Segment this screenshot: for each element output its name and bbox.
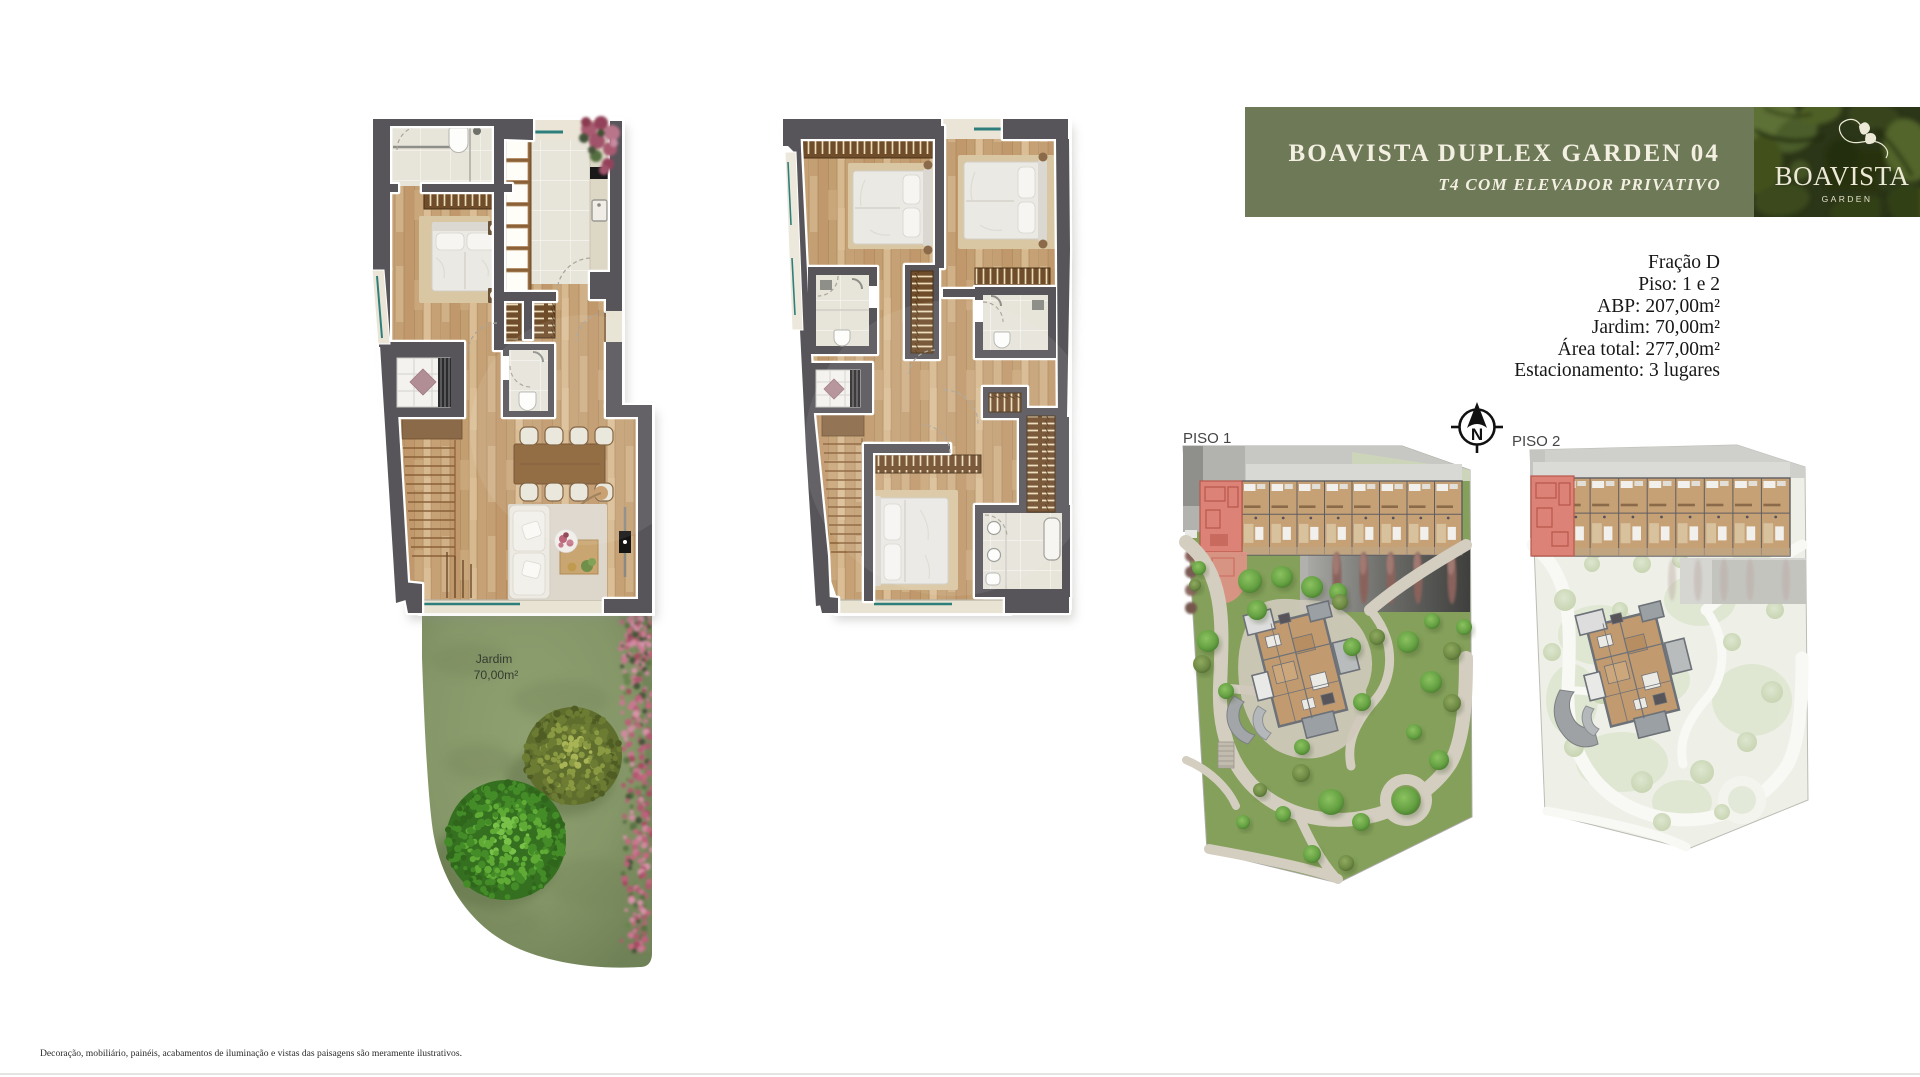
svg-text:T4 COM ELEVADOR PRIVATIVO: T4 COM ELEVADOR PRIVATIVO (1438, 175, 1721, 194)
svg-text:BOAVISTA: BOAVISTA (1775, 161, 1910, 191)
svg-text:ABP: 207,00m²: ABP: 207,00m² (1597, 296, 1720, 317)
svg-text:Piso: 1 e 2: Piso: 1 e 2 (1638, 274, 1720, 295)
svg-text:Fração D: Fração D (1648, 252, 1720, 273)
svg-text:PISO 1: PISO 1 (1183, 430, 1231, 447)
svg-text:PISO 2: PISO 2 (1512, 433, 1560, 450)
svg-text:Área total: 277,00m²: Área total: 277,00m² (1558, 338, 1721, 360)
svg-text:70,00m²: 70,00m² (474, 668, 519, 682)
svg-text:BOAVISTA DUPLEX GARDEN 04: BOAVISTA DUPLEX GARDEN 04 (1288, 140, 1720, 167)
svg-text:Jardim: 70,00m²: Jardim: 70,00m² (1592, 317, 1720, 338)
svg-text:Decoração, mobiliário, painéis: Decoração, mobiliário, painéis, acabamen… (40, 1048, 462, 1059)
svg-text:Estacionamento: 3 lugares: Estacionamento: 3 lugares (1514, 360, 1720, 381)
svg-text:GARDEN: GARDEN (1822, 194, 1873, 204)
svg-text:N: N (1471, 425, 1483, 444)
svg-text:Jardim: Jardim (476, 652, 513, 666)
